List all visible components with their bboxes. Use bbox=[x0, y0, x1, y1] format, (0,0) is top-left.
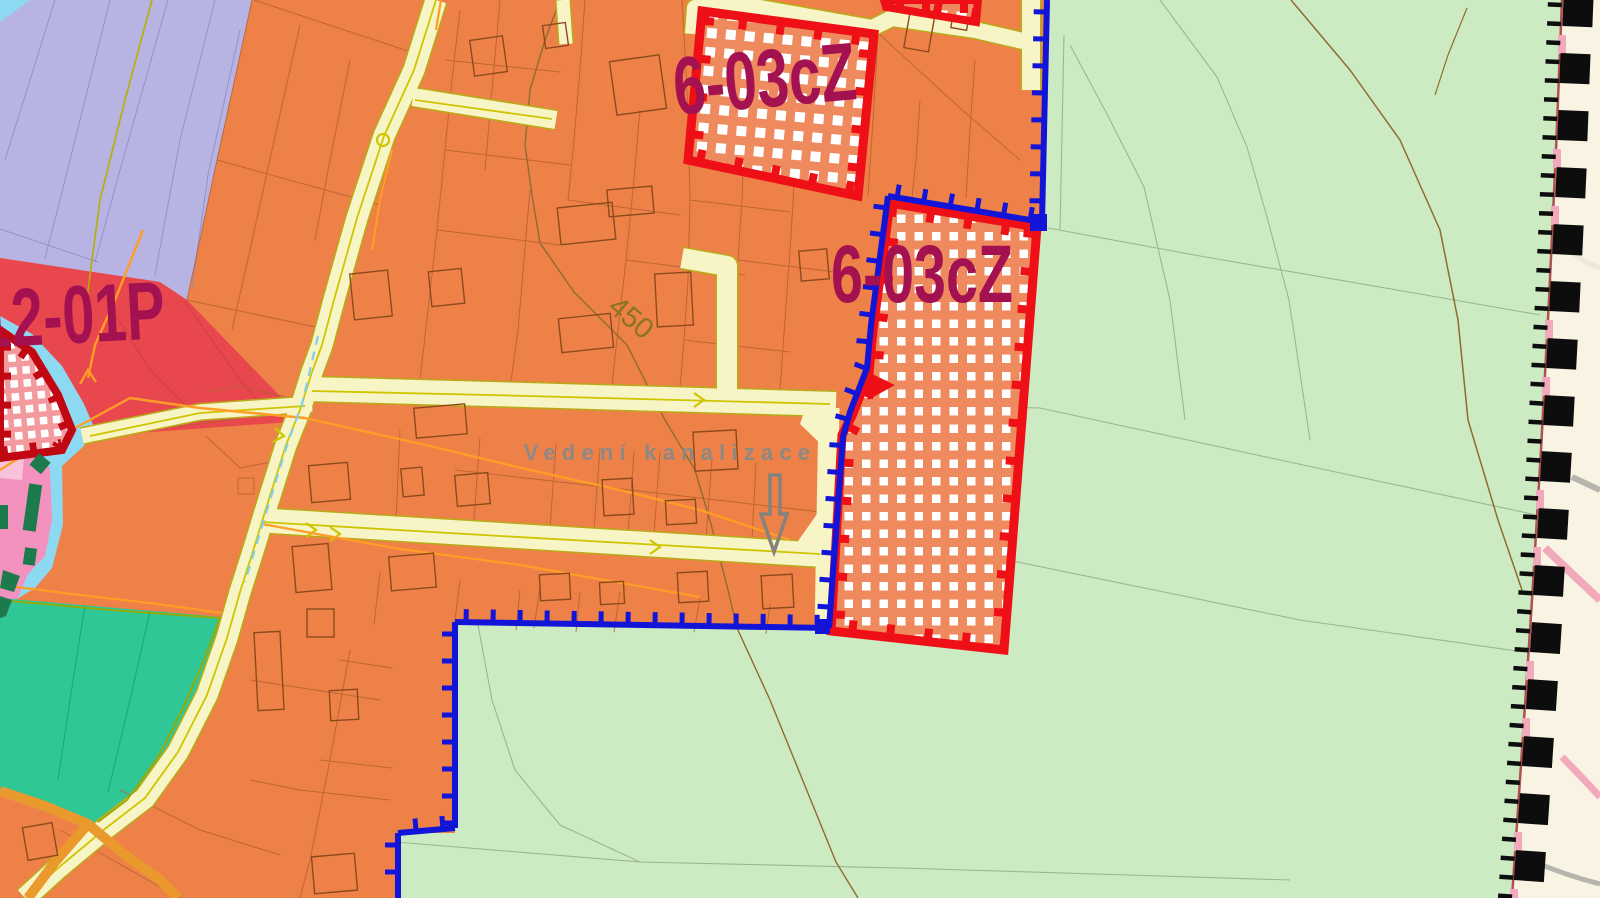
svg-text:6-03cZ: 6-03cZ bbox=[831, 229, 1013, 320]
svg-text:Vedení kanalizace: Vedení kanalizace bbox=[524, 440, 817, 465]
svg-text:12-01P: 12-01P bbox=[0, 265, 167, 366]
svg-text:6-03cZ: 6-03cZ bbox=[670, 26, 860, 133]
